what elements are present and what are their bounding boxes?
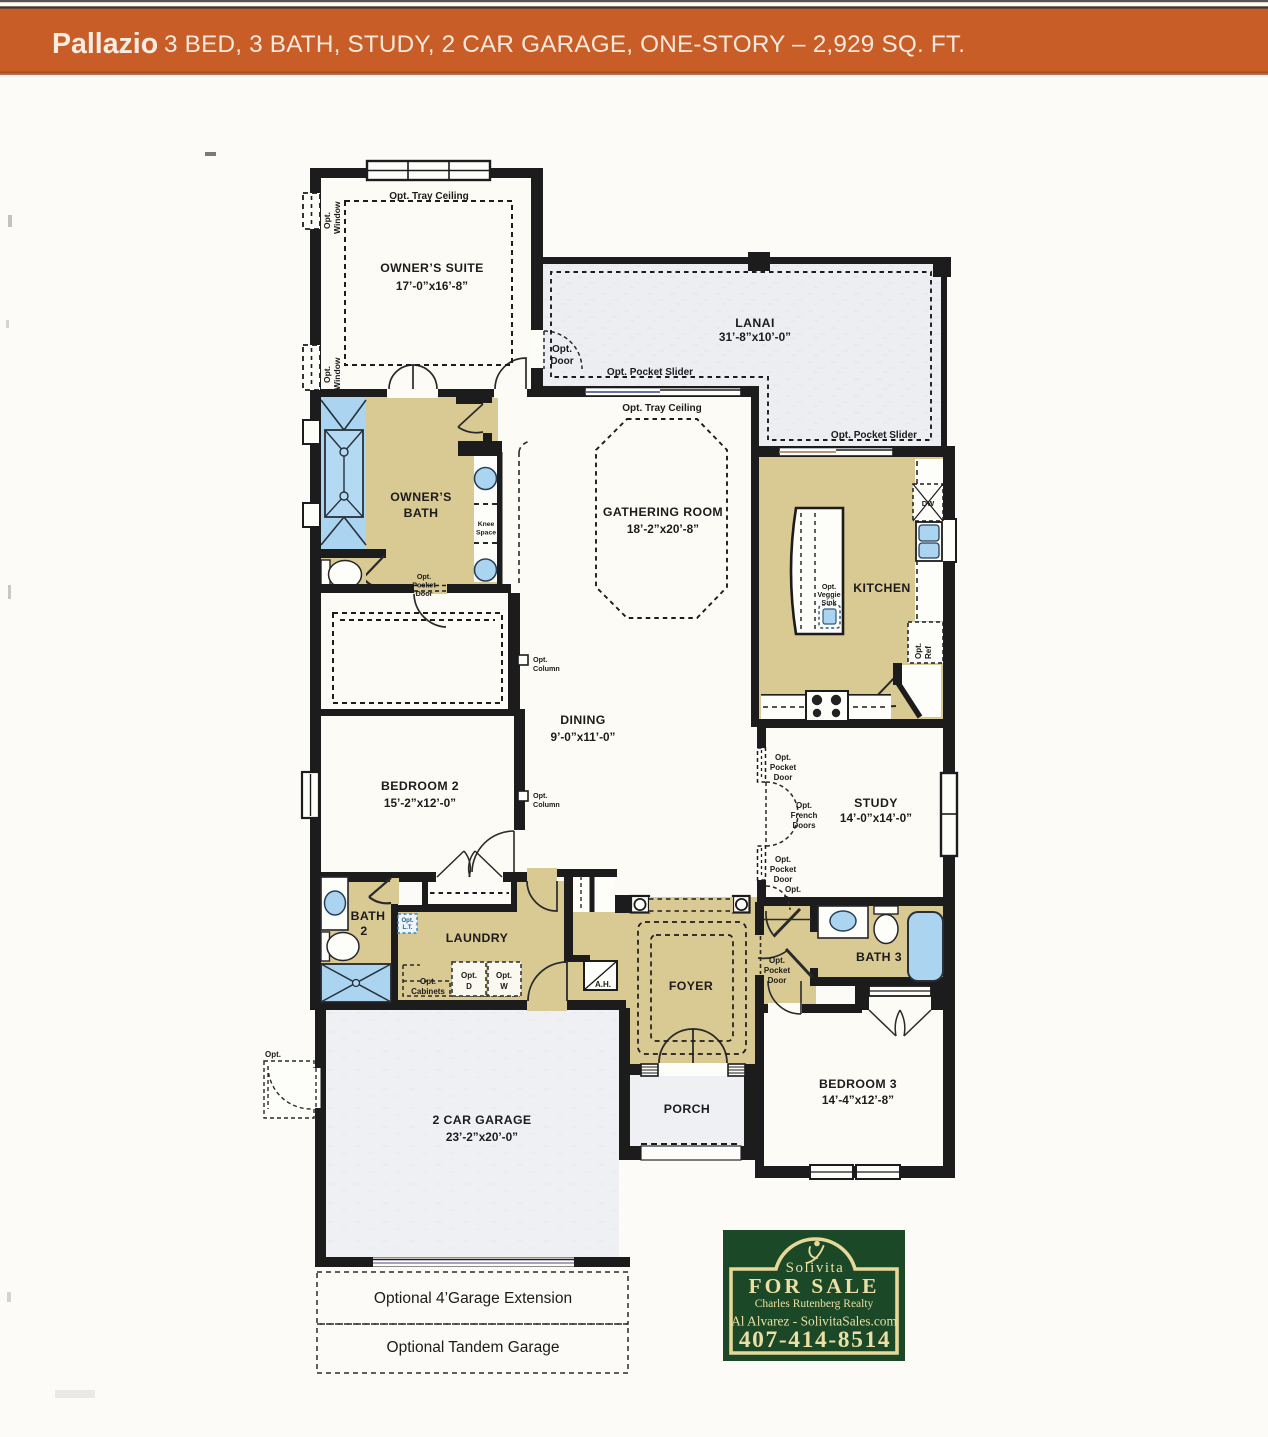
svg-text:Opt.: Opt. [322,366,332,383]
svg-text:OWNER’S SUITE: OWNER’S SUITE [380,261,484,275]
svg-text:23’-2”x20’-0”: 23’-2”x20’-0” [446,1130,518,1144]
svg-text:Opt. Pocket Slider: Opt. Pocket Slider [831,430,917,441]
svg-text:Pocket: Pocket [770,763,797,772]
svg-text:Pocket: Pocket [764,966,791,975]
svg-text:Column: Column [533,664,560,673]
svg-text:Opt.: Opt. [796,801,812,810]
svg-text:LAUNDRY: LAUNDRY [446,931,508,945]
svg-text:2: 2 [360,924,367,938]
svg-text:BEDROOM 2: BEDROOM 2 [381,779,459,793]
svg-text:Window: Window [332,201,342,234]
svg-text:Opt. Tray Ceiling: Opt. Tray Ceiling [622,403,701,414]
svg-text:Door: Door [550,356,573,367]
svg-text:DINING: DINING [560,713,605,727]
svg-text:18’-2”x20’-8”: 18’-2”x20’-8” [627,522,699,536]
svg-text:Opt.: Opt. [552,344,572,355]
svg-text:14’-4”x12’-8”: 14’-4”x12’-8” [822,1093,894,1107]
svg-text:Opt. Tray Ceiling: Opt. Tray Ceiling [389,191,468,202]
svg-text:17’-0”x16’-8”: 17’-0”x16’-8” [396,279,468,293]
svg-text:Sink: Sink [821,598,836,607]
svg-text:Door: Door [774,875,793,884]
svg-text:407-414-8514: 407-414-8514 [739,1327,891,1353]
svg-text:DW: DW [922,499,935,508]
svg-text:Opt.: Opt. [769,956,785,965]
svg-text:Knee: Knee [478,521,495,528]
svg-text:Window: Window [332,357,342,390]
svg-text:Opt.: Opt. [322,212,332,229]
svg-text:LANAI: LANAI [735,316,775,330]
svg-text:Opt.: Opt. [461,971,477,980]
svg-text:Opt. Pocket Slider: Opt. Pocket Slider [607,367,693,378]
svg-text:FOR SALE: FOR SALE [749,1274,880,1298]
svg-text:Door: Door [774,773,793,782]
svg-text:Opt.: Opt. [785,885,801,894]
svg-text:BATH 3: BATH 3 [856,950,902,964]
svg-text:Opt.: Opt. [533,655,547,664]
svg-text:KITCHEN: KITCHEN [853,581,910,595]
svg-text:Column: Column [533,800,560,809]
svg-text:Opt.: Opt. [914,643,923,659]
svg-text:A.H.: A.H. [595,980,611,989]
svg-text:Opt.: Opt. [533,791,547,800]
svg-text:Doors: Doors [792,821,816,830]
svg-text:31’-8”x10’-0”: 31’-8”x10’-0” [719,330,791,344]
svg-text:STUDY: STUDY [854,796,898,810]
svg-text:9’-0”x11’-0”: 9’-0”x11’-0” [551,730,616,744]
svg-text:GATHERING ROOM: GATHERING ROOM [603,505,723,519]
svg-text:OWNER’S: OWNER’S [390,490,452,504]
svg-text:Ref: Ref [924,646,933,659]
svg-text:PORCH: PORCH [664,1102,710,1116]
svg-text:BEDROOM 3: BEDROOM 3 [819,1077,897,1091]
svg-text:D: D [466,982,472,991]
svg-text:L.T.: L.T. [403,925,413,931]
svg-text:FOYER: FOYER [669,979,713,993]
svg-text:Pocket: Pocket [770,865,797,874]
svg-text:Door: Door [768,976,787,985]
svg-text:W: W [500,982,508,991]
svg-text:2 CAR GARAGE: 2 CAR GARAGE [432,1113,531,1127]
svg-text:Opt.: Opt. [496,971,512,980]
svg-text:Opt.: Opt. [775,855,791,864]
svg-text:Door: Door [784,895,803,904]
svg-text:Opt.: Opt. [265,1050,281,1059]
svg-text:Optional 4’Garage Extension: Optional 4’Garage Extension [374,1290,572,1307]
svg-text:15’-2”x12’-0”: 15’-2”x12’-0” [384,796,456,810]
svg-text:Opt.: Opt. [420,977,436,986]
svg-text:Opt.: Opt. [775,753,791,762]
svg-text:French: French [791,811,818,820]
svg-text:Pallazio: Pallazio [52,28,158,60]
svg-text:BATH: BATH [404,506,439,520]
svg-text:Optional Tandem Garage: Optional Tandem Garage [387,1339,560,1356]
svg-text:14’-0”x14’-0”: 14’-0”x14’-0” [840,811,912,825]
svg-text:Cabinets: Cabinets [411,987,445,996]
svg-text:BATH: BATH [351,909,386,923]
svg-text:Space: Space [476,530,496,537]
svg-text:3 BED, 3 BATH, STUDY, 2 CAR GA: 3 BED, 3 BATH, STUDY, 2 CAR GARAGE, ONE-… [164,31,965,58]
svg-text:Door: Door [416,589,433,598]
svg-text:Charles Rutenberg Realty: Charles Rutenberg Realty [755,1298,874,1310]
svg-text:Opt.: Opt. [402,918,414,924]
